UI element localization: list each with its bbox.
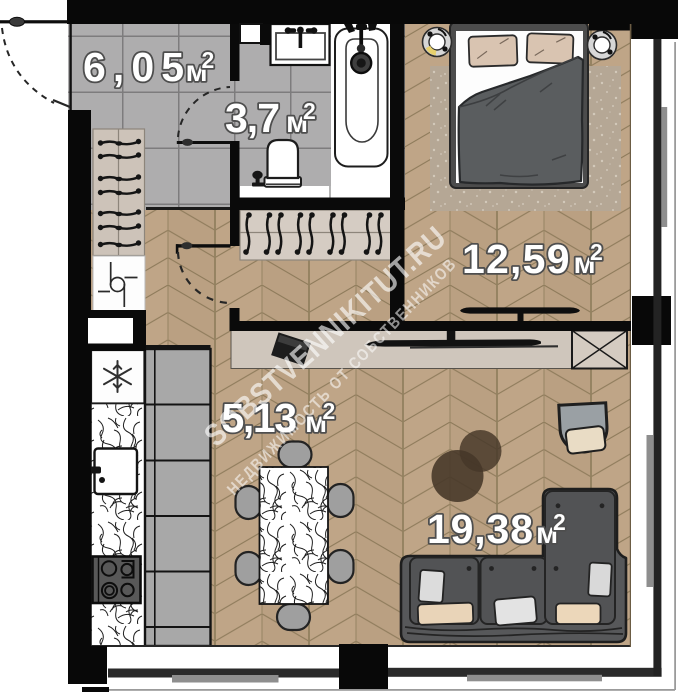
svg-text:6,05: 6,05 (83, 44, 184, 90)
svg-text:3,7: 3,7 (225, 95, 280, 141)
svg-text:12,59: 12,59 (462, 236, 570, 282)
svg-text:19,38: 19,38 (427, 506, 533, 552)
svg-text:2: 2 (202, 47, 215, 73)
svg-text:2: 2 (303, 98, 316, 124)
svg-text:2: 2 (553, 509, 566, 535)
svg-text:2: 2 (590, 239, 603, 265)
